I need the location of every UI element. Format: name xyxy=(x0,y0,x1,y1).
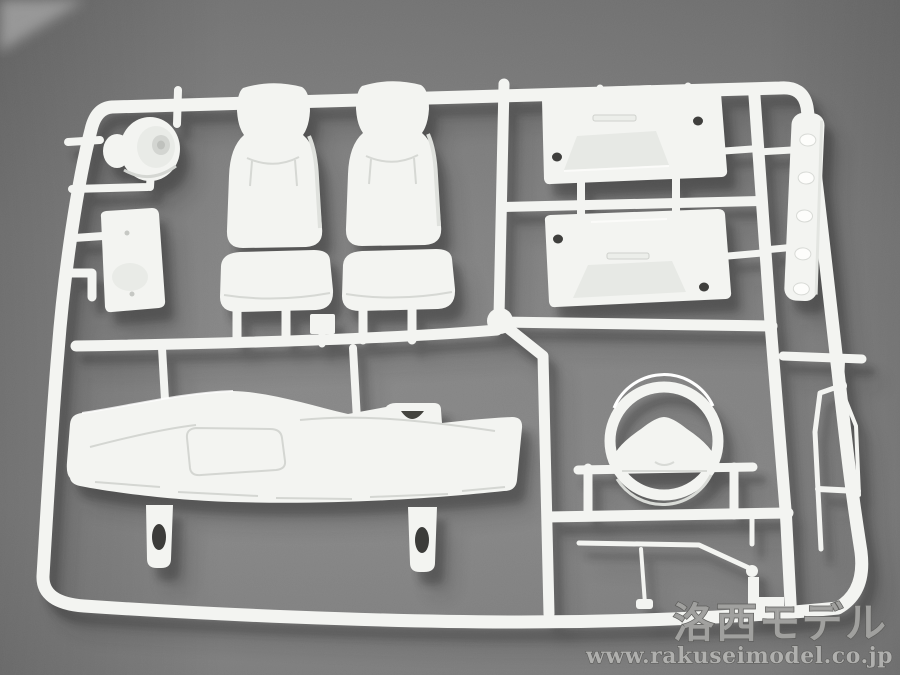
watermark-url: www.rakuseimodel.co.jp xyxy=(585,643,893,669)
sprue-photo: 洛西モデル www.rakuseimodel.co.jp xyxy=(0,0,900,675)
photo-frame: 洛西モデル www.rakuseimodel.co.jp xyxy=(0,0,900,675)
watermark-title: 洛西モデル xyxy=(673,599,888,647)
